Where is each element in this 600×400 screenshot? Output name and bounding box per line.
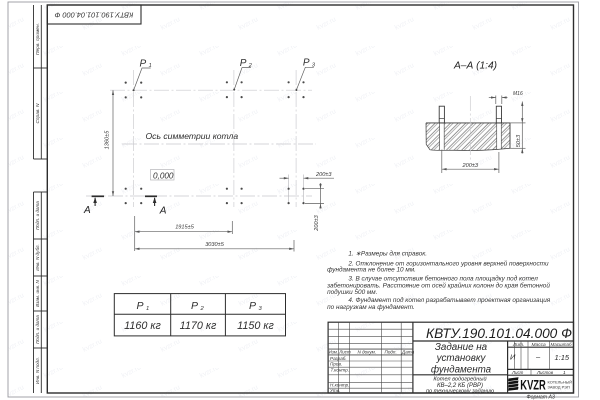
svg-text:Лист: Лист [511,370,524,375]
svg-text:P: P [249,300,256,312]
svg-text:фундамента не более 10 мм.: фундамента не более 10 мм. [327,266,416,274]
svg-text:4. Фундамент под котел разраб: 4. Фундамент под котел разрабатывает про… [348,296,550,304]
svg-text:установку: установку [436,353,487,364]
svg-text:Задание на: Задание на [435,342,488,353]
svg-text:Ось симметрии котла: Ось симметрии котла [146,131,239,141]
svg-text:P: P [191,300,198,312]
svg-text:Дата: Дата [401,349,415,354]
svg-text:Лист: Лист [338,349,351,354]
svg-text:Инв. N дубл.: Инв. N дубл. [35,244,40,271]
svg-text:1360±5: 1360±5 [105,130,111,150]
svg-text:А: А [159,206,167,217]
svg-text:Подп. и дата: Подп. и дата [35,315,40,344]
svg-text:P: P [140,59,147,70]
svg-text:1: 1 [146,306,149,312]
svg-text:1160 кг: 1160 кг [124,320,161,332]
svg-text:фундамента: фундамента [431,365,492,376]
svg-text:1: 1 [563,370,566,376]
svg-text:200±3: 200±3 [314,214,320,231]
svg-text:ЗАВОД РЭП: ЗАВОД РЭП [548,384,570,389]
svg-text:КВТУ.190.101.04.000 Ф: КВТУ.190.101.04.000 Ф [426,325,572,341]
svg-text:1915±5: 1915±5 [175,225,195,231]
svg-text:Котел водогрейный: Котел водогрейный [433,375,486,382]
svg-text:Масса: Масса [532,342,547,348]
svg-text:Т.контр.: Т.контр. [331,368,350,373]
svg-text:Перв. примен.: Перв. примен. [35,23,41,55]
svg-text:1: 1 [149,63,152,69]
svg-text:Подп.: Подп. [385,349,397,354]
svg-text:Справ. N: Справ. N [35,103,41,124]
svg-text:Подп. и дата: Подп. и дата [35,201,40,230]
svg-text:1150 кг: 1150 кг [237,320,274,332]
svg-text:200±3: 200±3 [315,172,332,178]
svg-text:P: P [240,58,247,69]
svg-text:N докум.: N докум. [358,349,377,354]
svg-text:по нагрузкам на фундамент.: по нагрузкам на фундамент. [327,303,415,311]
svg-text:Масштаб: Масштаб [551,342,572,347]
svg-text:Разраб.: Разраб. [330,356,347,361]
svg-text:KVZR: KVZR [520,377,546,392]
svg-text:200±3: 200±3 [462,163,479,169]
svg-text:Формат А3: Формат А3 [527,395,555,400]
svg-text:50±3: 50±3 [516,134,522,147]
svg-text:КВТУ.190.101.04.000 Ф: КВТУ.190.101.04.000 Ф [54,11,133,20]
svg-text:Пров.: Пров. [330,361,342,366]
svg-text:Листов: Листов [536,370,554,375]
svg-text:Изм.: Изм. [329,349,338,354]
svg-text:И: И [510,353,516,362]
svg-text:0,000: 0,000 [153,172,174,181]
svg-text:Инв. N подл.: Инв. N подл. [35,357,40,384]
svg-text:Утв.: Утв. [330,388,340,393]
svg-text:3030±5: 3030±5 [205,242,225,248]
svg-text:–: – [535,352,541,361]
svg-text:Взам. инв. N: Взам. инв. N [35,279,40,306]
svg-text:А: А [83,205,91,216]
svg-text:1:15: 1:15 [555,353,570,362]
svg-text:2: 2 [248,63,252,69]
svg-text:Лит.: Лит. [512,342,524,348]
svg-text:P: P [137,300,144,312]
svg-text:1170 кг: 1170 кг [180,320,217,332]
svg-text:А–А (1:4): А–А (1:4) [453,61,497,72]
svg-text:P: P [303,58,310,69]
svg-text:1. ∗Размеры для справок.: 1. ∗Размеры для справок. [348,249,427,257]
svg-text:подушки 500 мм.: подушки 500 мм. [327,288,377,296]
svg-text:Н.контр.: Н.контр. [330,383,349,388]
svg-text:по техническому заданию: по техническому заданию [426,389,494,395]
svg-text:М16: М16 [513,91,523,97]
svg-text:3. В случае отсутствия бетонн: 3. В случае отсутствия бетонного пола пл… [348,274,538,282]
